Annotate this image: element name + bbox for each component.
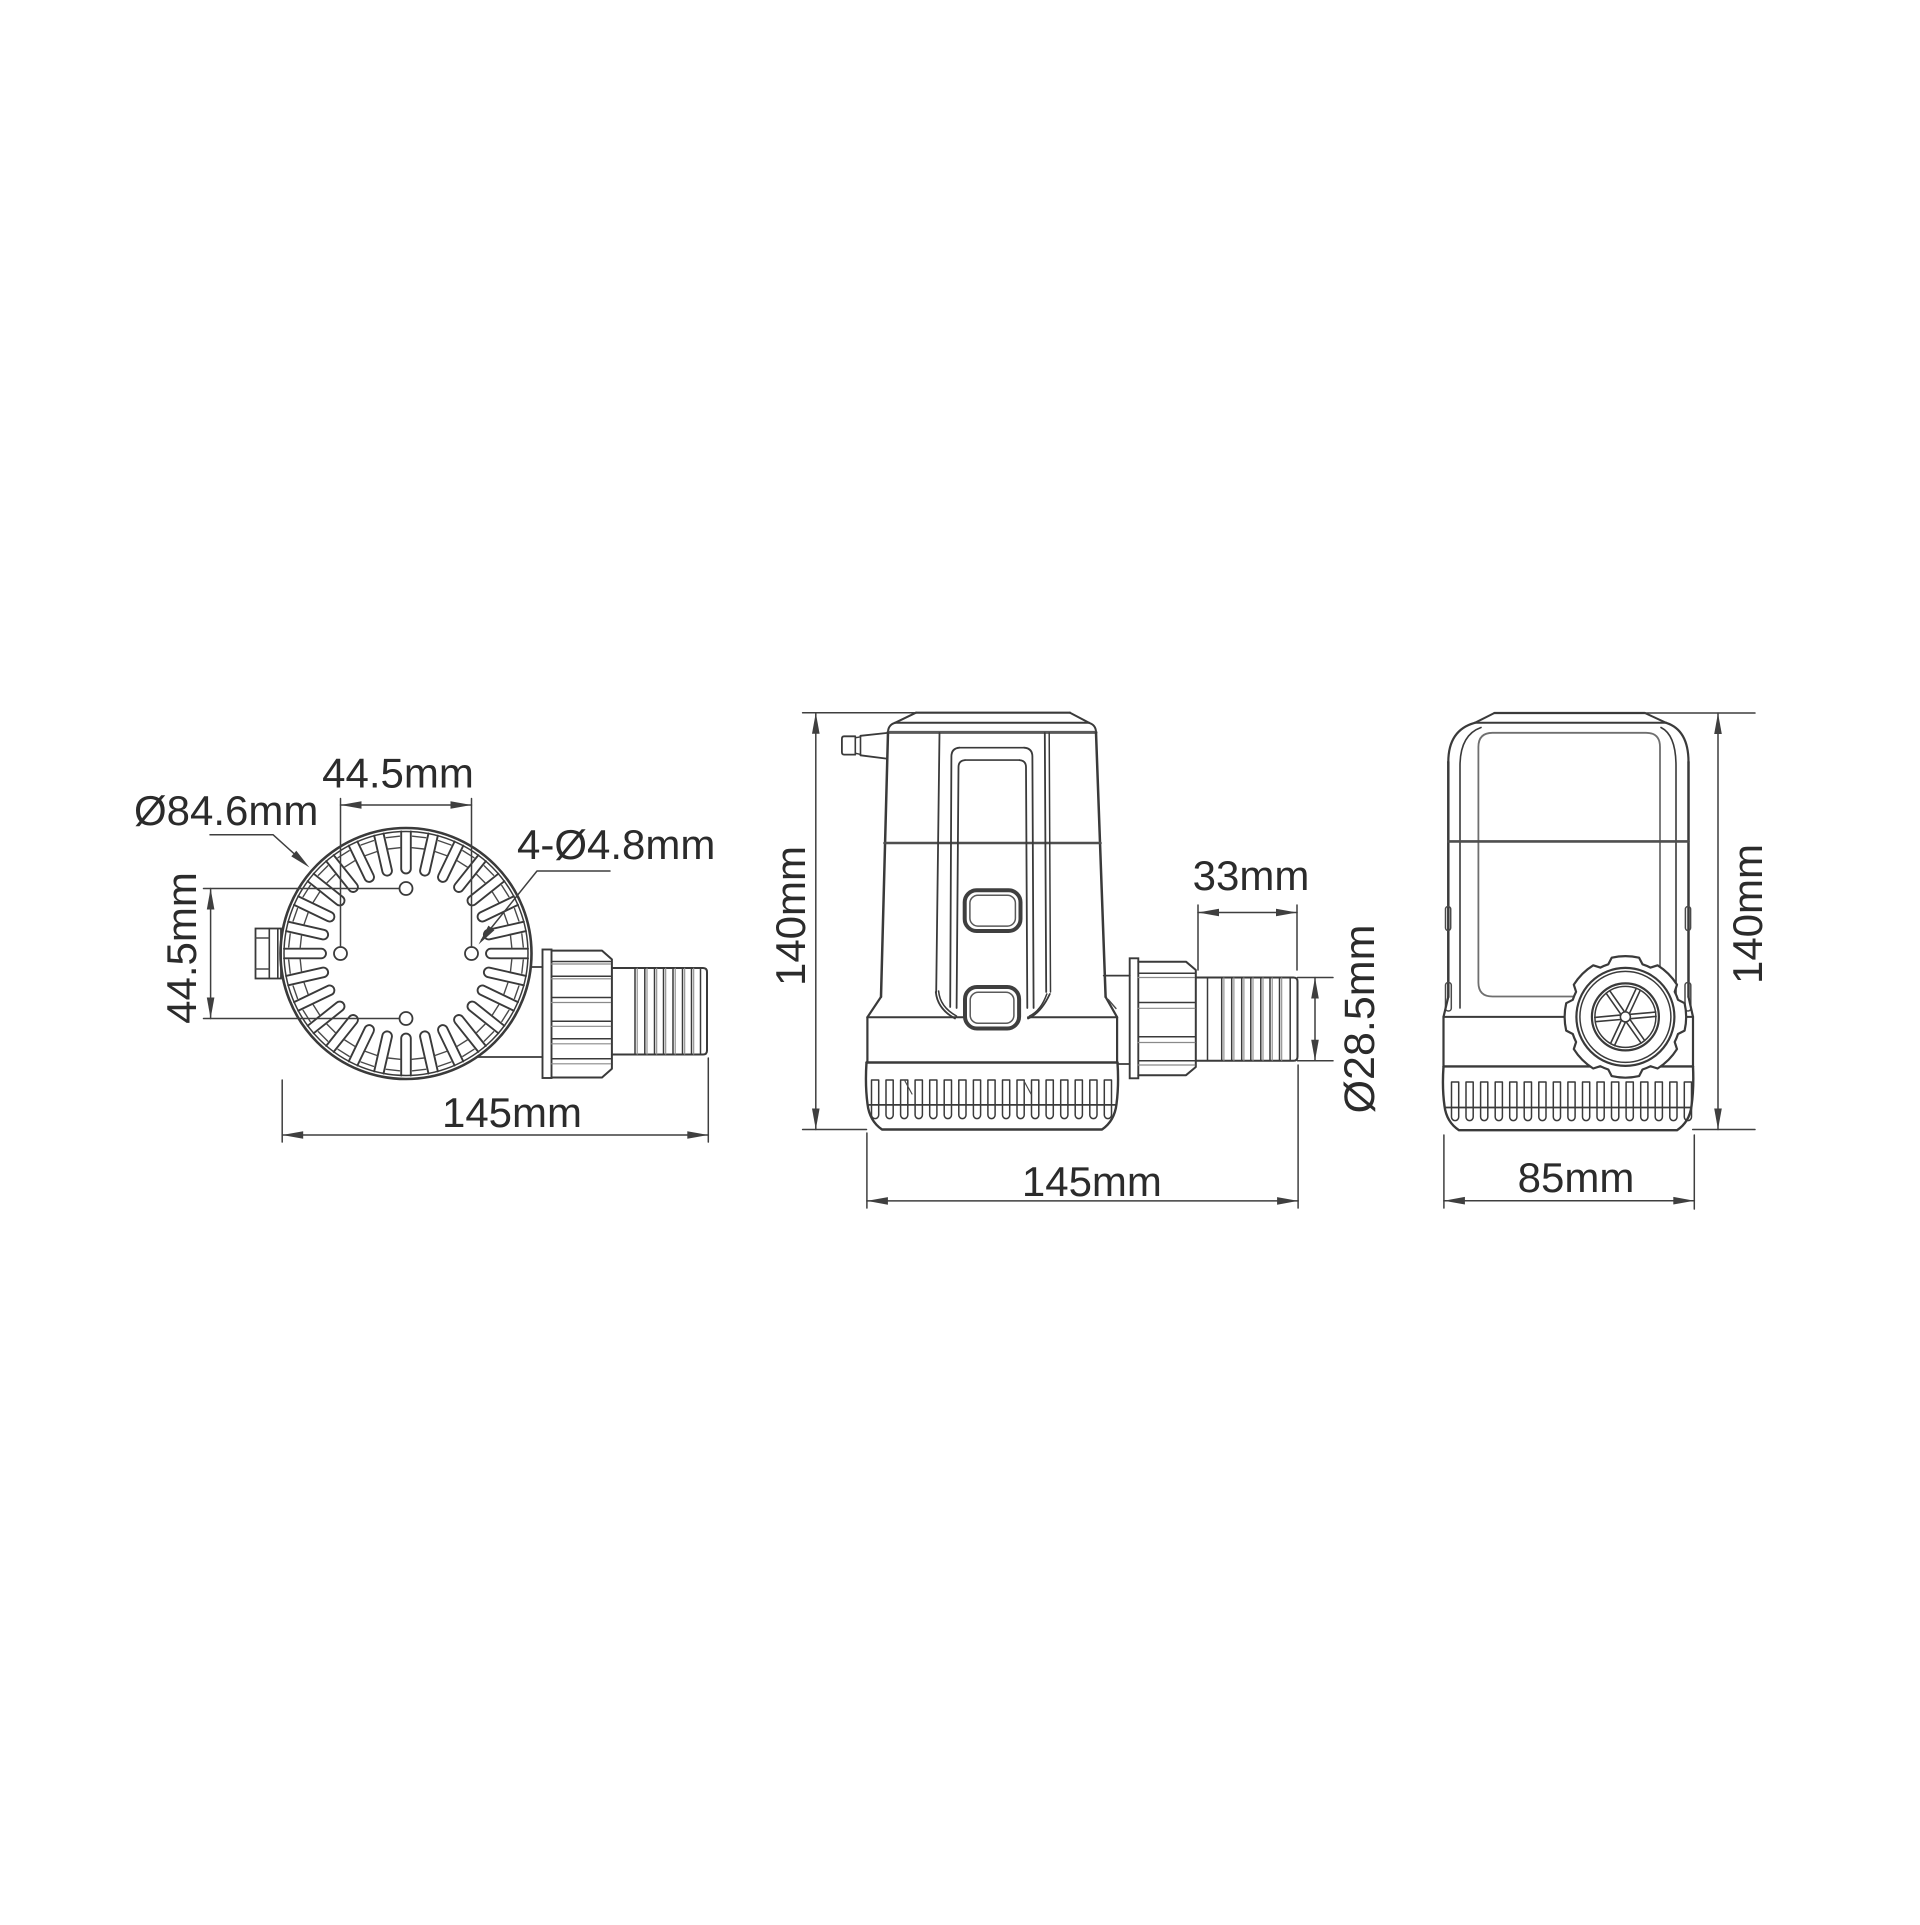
svg-text:44.5mm: 44.5mm	[322, 750, 474, 797]
svg-text:44.5mm: 44.5mm	[158, 872, 205, 1024]
svg-text:145mm: 145mm	[442, 1089, 582, 1136]
svg-text:85mm: 85mm	[1518, 1154, 1635, 1201]
svg-text:140mm: 140mm	[767, 846, 814, 986]
svg-text:4-Ø4.8mm: 4-Ø4.8mm	[517, 821, 715, 868]
svg-text:Ø84.6mm: Ø84.6mm	[134, 787, 318, 834]
svg-text:145mm: 145mm	[1022, 1158, 1162, 1205]
svg-text:Ø28.5mm: Ø28.5mm	[1336, 925, 1384, 1114]
svg-text:33mm: 33mm	[1193, 852, 1310, 899]
svg-text:140mm: 140mm	[1724, 844, 1771, 984]
